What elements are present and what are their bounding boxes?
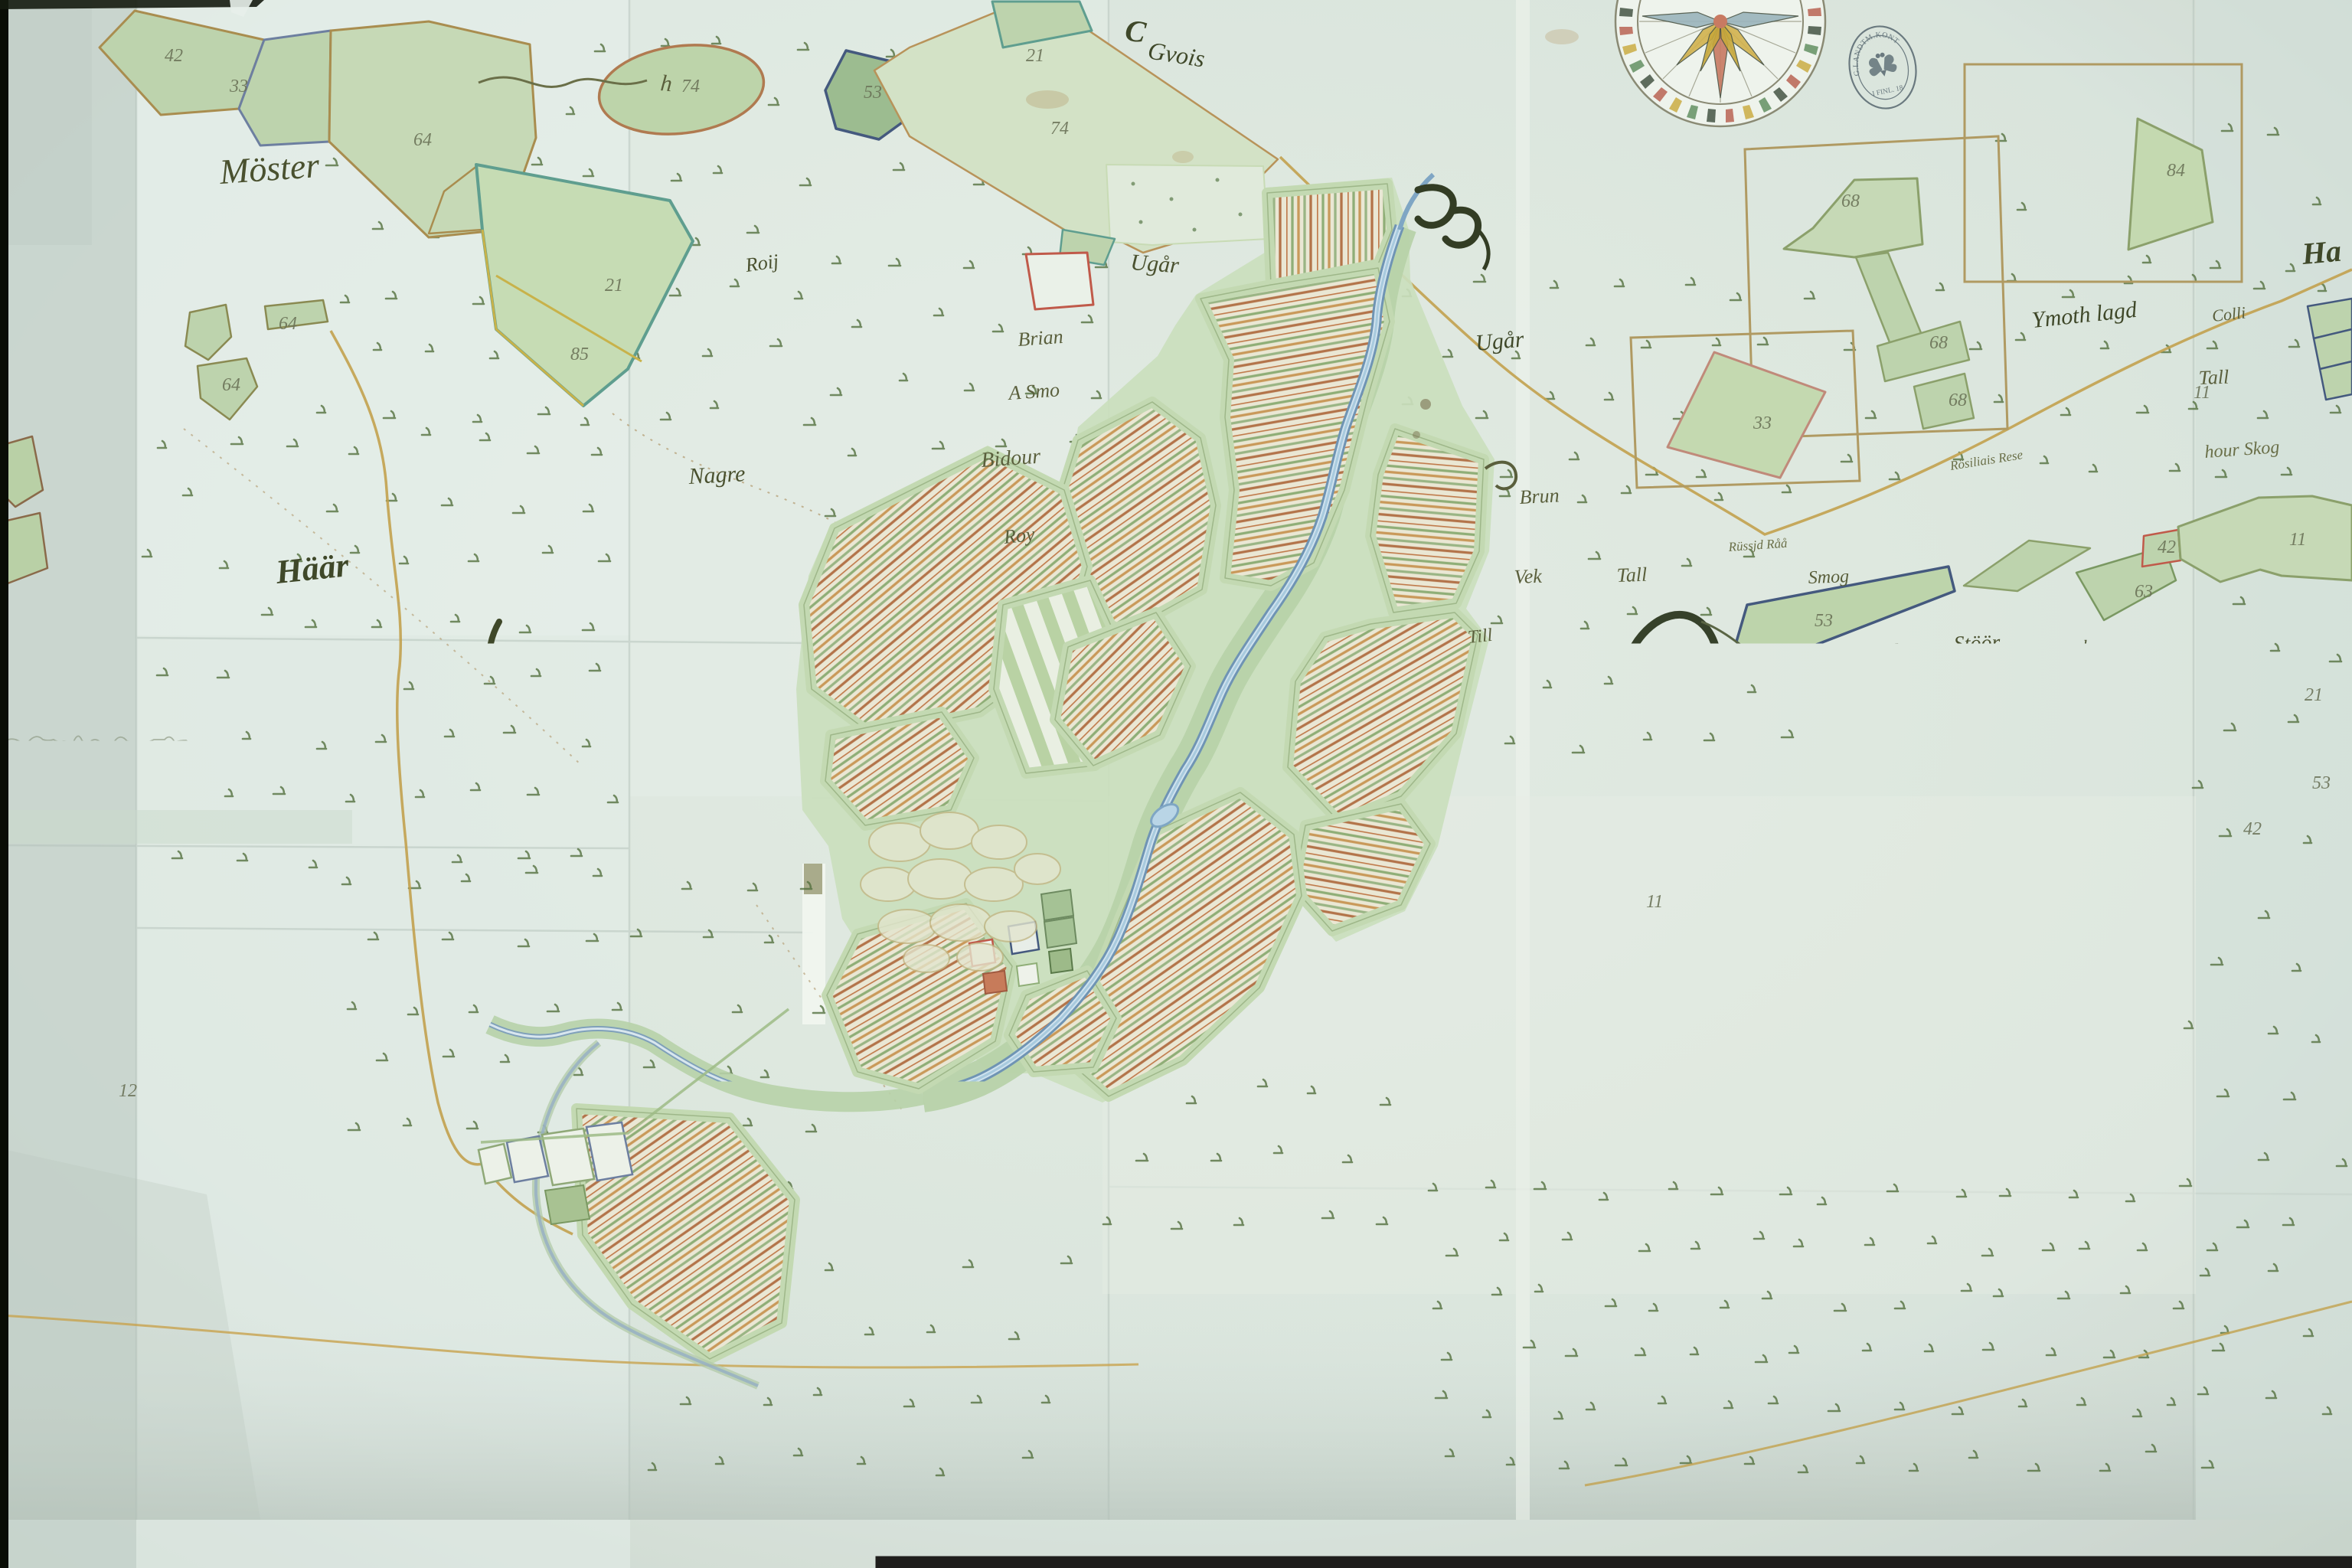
svg-text:Biörck: Biörck — [2157, 815, 2210, 839]
svg-text:Smog: Smog — [1808, 567, 1849, 588]
svg-text:6⅓: 6⅓ — [328, 805, 349, 825]
svg-text:Raia: Raia — [1092, 1366, 1125, 1387]
svg-text:Timber: Timber — [1858, 680, 1916, 705]
svg-text:46: 46 — [1435, 874, 1455, 897]
svg-text:33: 33 — [459, 1424, 478, 1444]
svg-text:56: 56 — [1841, 947, 1860, 969]
svg-text:42: 42 — [1776, 1420, 1795, 1440]
svg-text:53: 53 — [2312, 773, 2331, 793]
svg-text:68: 68 — [83, 1378, 101, 1398]
svg-text:Roy: Roy — [1002, 523, 1037, 548]
svg-text:53: 53 — [1841, 823, 1860, 845]
svg-text:11: 11 — [2289, 530, 2306, 550]
svg-text:62: 62 — [1841, 1100, 1860, 1122]
svg-text:Biörze: Biörze — [1606, 1381, 1663, 1408]
svg-text:64: 64 — [222, 375, 240, 395]
svg-text:55: 55 — [1841, 921, 1860, 943]
svg-text:6¼: 6¼ — [1795, 854, 1814, 871]
svg-text:53: 53 — [1815, 611, 1833, 631]
svg-text:Vek: Vek — [1514, 565, 1543, 588]
svg-text:63: 63 — [1841, 1123, 1860, 1145]
svg-text:33: 33 — [1753, 413, 1772, 433]
svg-text:64: 64 — [1386, 1420, 1404, 1440]
svg-text:21: 21 — [2305, 685, 2323, 705]
svg-text:42: 42 — [2158, 537, 2176, 557]
svg-text:53: 53 — [1906, 1328, 1925, 1348]
svg-text:Roij: Roij — [743, 250, 780, 276]
svg-text:Sno: Sno — [946, 1144, 978, 1168]
svg-text:1⅔: 1⅔ — [1795, 978, 1814, 995]
svg-text:21: 21 — [1684, 1390, 1703, 1410]
svg-text:64: 64 — [413, 130, 432, 150]
svg-text:2⅓: 2⅓ — [2150, 925, 2169, 942]
svg-text:h: h — [659, 70, 673, 96]
svg-text:33: 33 — [229, 77, 248, 96]
svg-text:Brun: Brun — [1519, 484, 1560, 508]
svg-text:gar: gar — [410, 1209, 446, 1238]
svg-text:85: 85 — [1344, 1294, 1362, 1314]
svg-text:59: 59 — [1841, 1007, 1860, 1029]
svg-text:48: 48 — [1435, 947, 1455, 969]
svg-text:63: 63 — [2135, 582, 2153, 602]
svg-text:12: 12 — [276, 1139, 294, 1159]
svg-text:51: 51 — [1435, 1051, 1455, 1073]
svg-text:1⅞: 1⅞ — [2150, 969, 2169, 985]
svg-text:32: 32 — [1492, 1370, 1511, 1390]
svg-text:Pblads: Pblads — [648, 707, 704, 732]
svg-text:Tall: Tall — [1013, 1135, 1045, 1159]
svg-text:53: 53 — [864, 83, 882, 103]
svg-text:Sampt: Sampt — [1710, 677, 1762, 703]
svg-text:54: 54 — [1841, 869, 1860, 891]
svg-text:13/16: 13/16 — [1795, 1077, 1830, 1094]
svg-text:Vek: Vek — [878, 1207, 905, 1228]
svg-text:Tull: Tull — [1628, 982, 1665, 1008]
svg-text:74: 74 — [681, 77, 700, 96]
svg-text:⅞: ⅞ — [2150, 1080, 2161, 1097]
svg-text:68: 68 — [1949, 390, 1967, 410]
svg-text:42: 42 — [165, 46, 183, 66]
svg-text:47: 47 — [1435, 903, 1455, 926]
svg-text:68: 68 — [1929, 333, 1948, 353]
svg-text:42: 42 — [2243, 819, 2262, 839]
svg-text:5¾: 5¾ — [2150, 1103, 2169, 1120]
svg-text:Roy: Roy — [2311, 1021, 2336, 1039]
svg-text:11⅜: 11⅜ — [1795, 1102, 1821, 1119]
svg-text:12: 12 — [119, 1081, 137, 1101]
svg-text:50: 50 — [1435, 1001, 1455, 1023]
svg-text:18: 18 — [2150, 1223, 2165, 1240]
svg-text:61: 61 — [1841, 1053, 1860, 1075]
svg-text:1: 1 — [328, 730, 336, 750]
svg-text:Ugår: Ugår — [1130, 250, 1181, 278]
svg-text:12⅙: 12⅙ — [328, 782, 362, 802]
svg-text:74: 74 — [1050, 119, 1069, 139]
svg-text:7½: 7½ — [2150, 871, 2169, 888]
svg-text:11: 11 — [1217, 1397, 1234, 1417]
svg-text:16: 16 — [2150, 1126, 2165, 1143]
svg-text:Colli: Colli — [2211, 303, 2246, 325]
svg-text:Häär: Häär — [273, 546, 351, 591]
svg-text:och: och — [2066, 636, 2092, 656]
svg-text:21: 21 — [2259, 1118, 2277, 1138]
svg-text:4¾: 4¾ — [1795, 1028, 1814, 1045]
svg-text:32: 32 — [2288, 1191, 2308, 1210]
svg-text:6: 6 — [2150, 1275, 2158, 1292]
svg-text:Buskas: Buskas — [696, 712, 758, 739]
svg-text:Till: Till — [1467, 626, 1494, 648]
svg-text:Ha: Ha — [2300, 234, 2343, 271]
svg-text:84: 84 — [2167, 161, 2185, 181]
svg-text:36: 36 — [1425, 1148, 1444, 1168]
svg-text:49: 49 — [1435, 975, 1455, 997]
svg-text:otarum.: otarum. — [1608, 698, 1920, 788]
svg-text:5⅜: 5⅜ — [2150, 1055, 2169, 1072]
svg-text:PblaS: PblaS — [641, 889, 698, 918]
svg-text:7⅛: 7⅛ — [328, 920, 349, 939]
svg-text:Ugår: Ugår — [1475, 327, 1525, 356]
svg-text:Brännörd: Brännörd — [2135, 647, 2207, 669]
svg-text:68: 68 — [1841, 191, 1860, 211]
svg-text:11: 11 — [1646, 892, 1663, 912]
svg-text:Lyllig: Lyllig — [2041, 694, 2089, 718]
svg-text:13⅝: 13⅝ — [328, 851, 358, 871]
svg-text:65: 65 — [1841, 1248, 1860, 1270]
svg-text:13½: 13½ — [1795, 950, 1821, 967]
svg-text:4: 4 — [2150, 828, 2158, 844]
svg-text:Biörn: Biörn — [2206, 1093, 2252, 1116]
svg-text:74: 74 — [1997, 1309, 2015, 1329]
svg-text:52: 52 — [1435, 1076, 1455, 1098]
svg-text:Stöör: Stöör — [1953, 631, 2001, 656]
svg-text:⅞: ⅞ — [1795, 1054, 1806, 1071]
svg-text:Brian: Brian — [1017, 325, 1063, 351]
svg-text:21: 21 — [605, 276, 623, 296]
svg-text:21: 21 — [1401, 1282, 1419, 1302]
svg-text:11: 11 — [2194, 383, 2210, 403]
svg-text:57: 57 — [1841, 967, 1861, 989]
svg-text:Vex: Vex — [480, 893, 511, 918]
svg-text:74: 74 — [1493, 1252, 1511, 1272]
svg-text:73: 73 — [1271, 1290, 1289, 1310]
svg-text:53: 53 — [1347, 1202, 1366, 1222]
svg-text:64: 64 — [279, 314, 297, 334]
svg-text:21: 21 — [1026, 46, 1044, 66]
svg-text:12⅜: 12⅜ — [2150, 1149, 2177, 1166]
svg-text:64: 64 — [1841, 1197, 1860, 1219]
svg-text:74: 74 — [1302, 1347, 1320, 1367]
svg-text:Biarchet: Biarchet — [1846, 639, 1921, 665]
svg-text:1⅜: 1⅜ — [2150, 990, 2169, 1007]
svg-text:Tall: Tall — [1616, 563, 1648, 586]
svg-text:85: 85 — [570, 345, 589, 364]
svg-text:6¾: 6¾ — [2150, 1174, 2169, 1191]
svg-text:60: 60 — [1841, 1030, 1860, 1052]
svg-text:Bidour: Bidour — [980, 445, 1041, 472]
svg-text:Nagre: Nagre — [688, 461, 746, 489]
svg-text:Biörs: Biörs — [519, 704, 567, 731]
svg-text:54: 54 — [282, 1185, 300, 1205]
svg-text:Möster: Möster — [217, 145, 322, 191]
svg-text:Vex: Vex — [445, 707, 474, 730]
svg-text:A Smo: A Smo — [1006, 378, 1060, 404]
